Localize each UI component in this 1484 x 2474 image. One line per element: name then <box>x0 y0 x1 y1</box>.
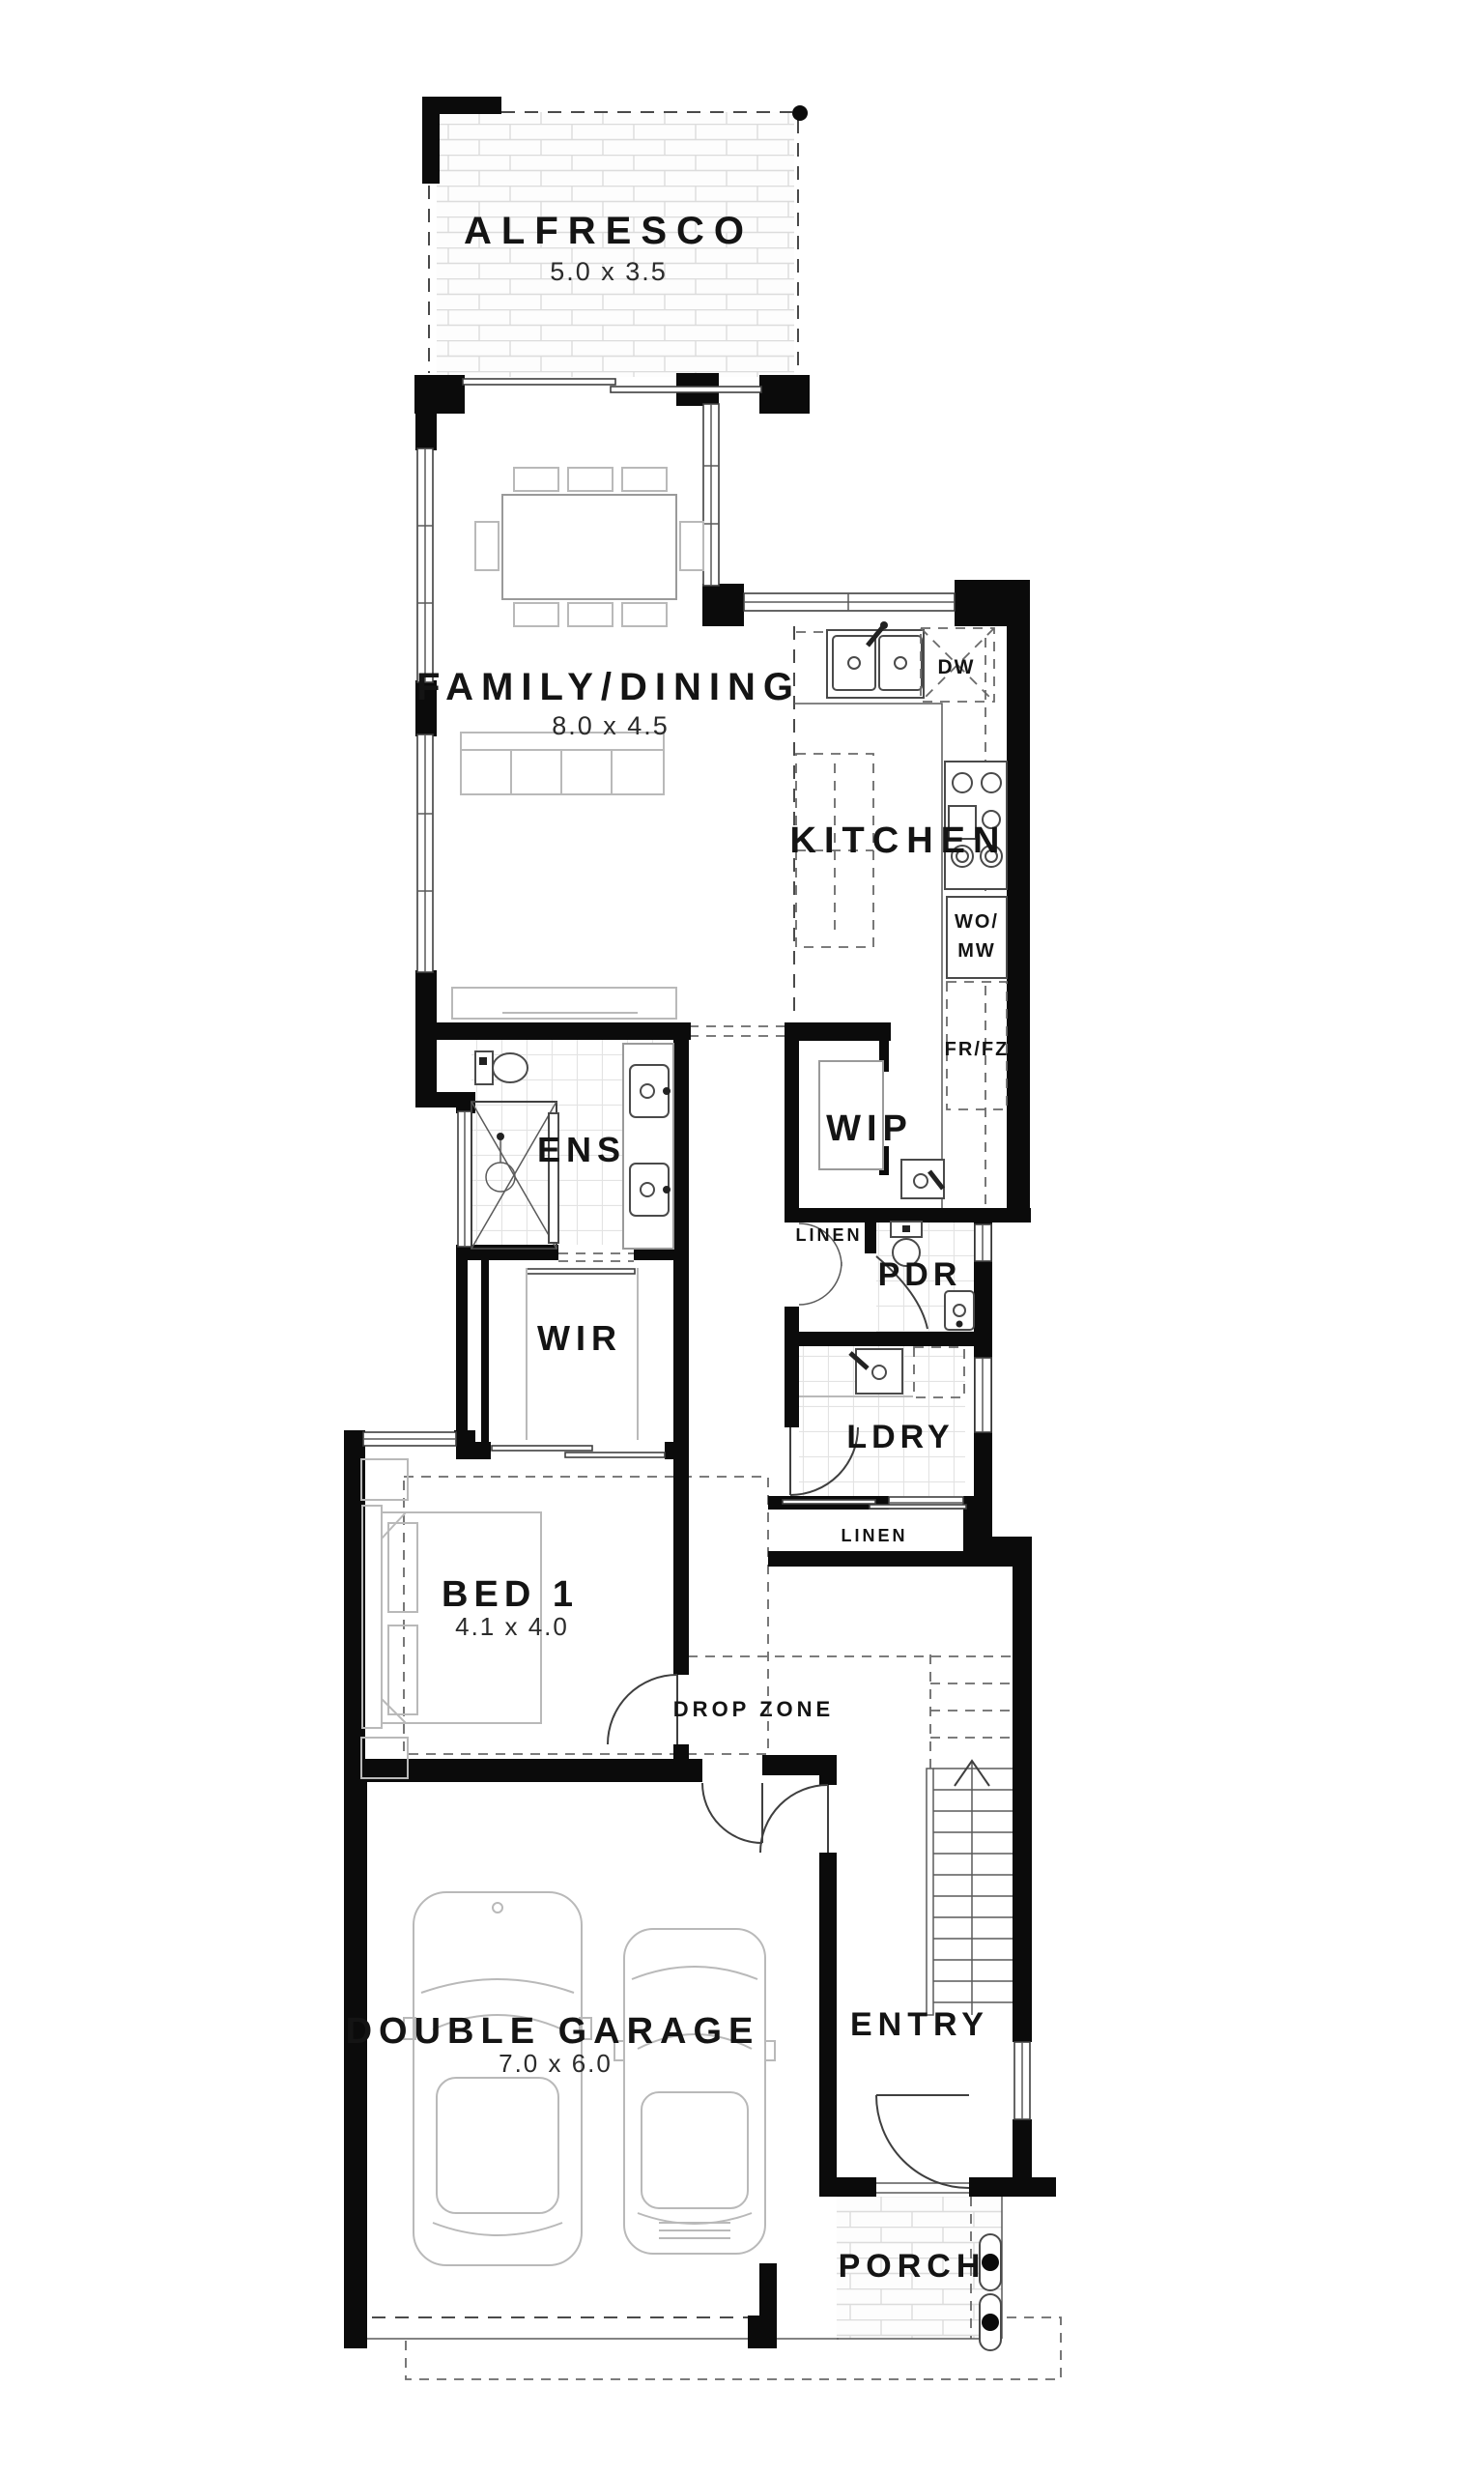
label-kitchen: KITCHEN <box>790 820 1008 861</box>
wall-oven-microwave <box>947 897 1007 978</box>
family-left-window-2 <box>417 734 433 972</box>
entry-right-window <box>1014 2042 1030 2119</box>
family-left-window-1 <box>417 448 433 682</box>
ens-pocket-door <box>527 1269 635 1274</box>
label-ens: ENS <box>537 1130 626 1169</box>
ens-toilet <box>475 1051 528 1084</box>
kitchen-window <box>744 593 955 611</box>
label-linen-lower: LINEN <box>842 1526 908 1545</box>
label-dishwasher: DW <box>938 656 976 678</box>
ldry-right-window <box>975 1358 991 1432</box>
kitchen-sink <box>827 621 924 698</box>
ens-shower-window <box>458 1111 471 1247</box>
label-pdr: PDR <box>878 1256 962 1293</box>
dims-alfresco: 5.0 x 3.5 <box>550 257 668 286</box>
label-double-garage: DOUBLE GARAGE <box>346 2011 760 2052</box>
label-wip: WIP <box>826 1108 913 1149</box>
pdr-basin <box>945 1291 974 1330</box>
label-wall-oven-1: WO/ <box>955 911 999 933</box>
label-porch: PORCH <box>839 2248 986 2285</box>
label-fridge-freezer: FR/FZ <box>945 1039 1010 1060</box>
alfresco-post <box>792 105 808 121</box>
pdr-window <box>975 1224 991 1261</box>
dims-family-dining: 8.0 x 4.5 <box>552 711 670 740</box>
label-bed1: BED 1 <box>442 1574 579 1615</box>
floor-plan-page: ALFRESCO 5.0 x 3.5 FAMILY/DINING 8.0 x 4… <box>0 0 1484 2474</box>
dims-bed1: 4.1 x 4.0 <box>455 1612 569 1641</box>
ens-vanity <box>623 1044 673 1249</box>
label-ldry: LDRY <box>846 1419 954 1455</box>
label-linen-upper: LINEN <box>796 1225 863 1245</box>
label-family-dining: FAMILY/DINING <box>416 666 801 708</box>
label-wall-oven-2: MW <box>957 940 996 962</box>
floor-plan-drawing: ALFRESCO 5.0 x 3.5 FAMILY/DINING 8.0 x 4… <box>0 0 1484 2474</box>
bed1-window <box>363 1432 456 1446</box>
label-drop-zone: DROP ZONE <box>673 1697 834 1721</box>
label-wir: WIR <box>537 1318 622 1358</box>
label-alfresco: ALFRESCO <box>464 210 754 252</box>
dims-double-garage: 7.0 x 6.0 <box>499 2049 613 2078</box>
label-entry: ENTRY <box>850 2006 989 2043</box>
wip-sink <box>901 1160 944 1198</box>
family-right-window <box>703 404 719 586</box>
